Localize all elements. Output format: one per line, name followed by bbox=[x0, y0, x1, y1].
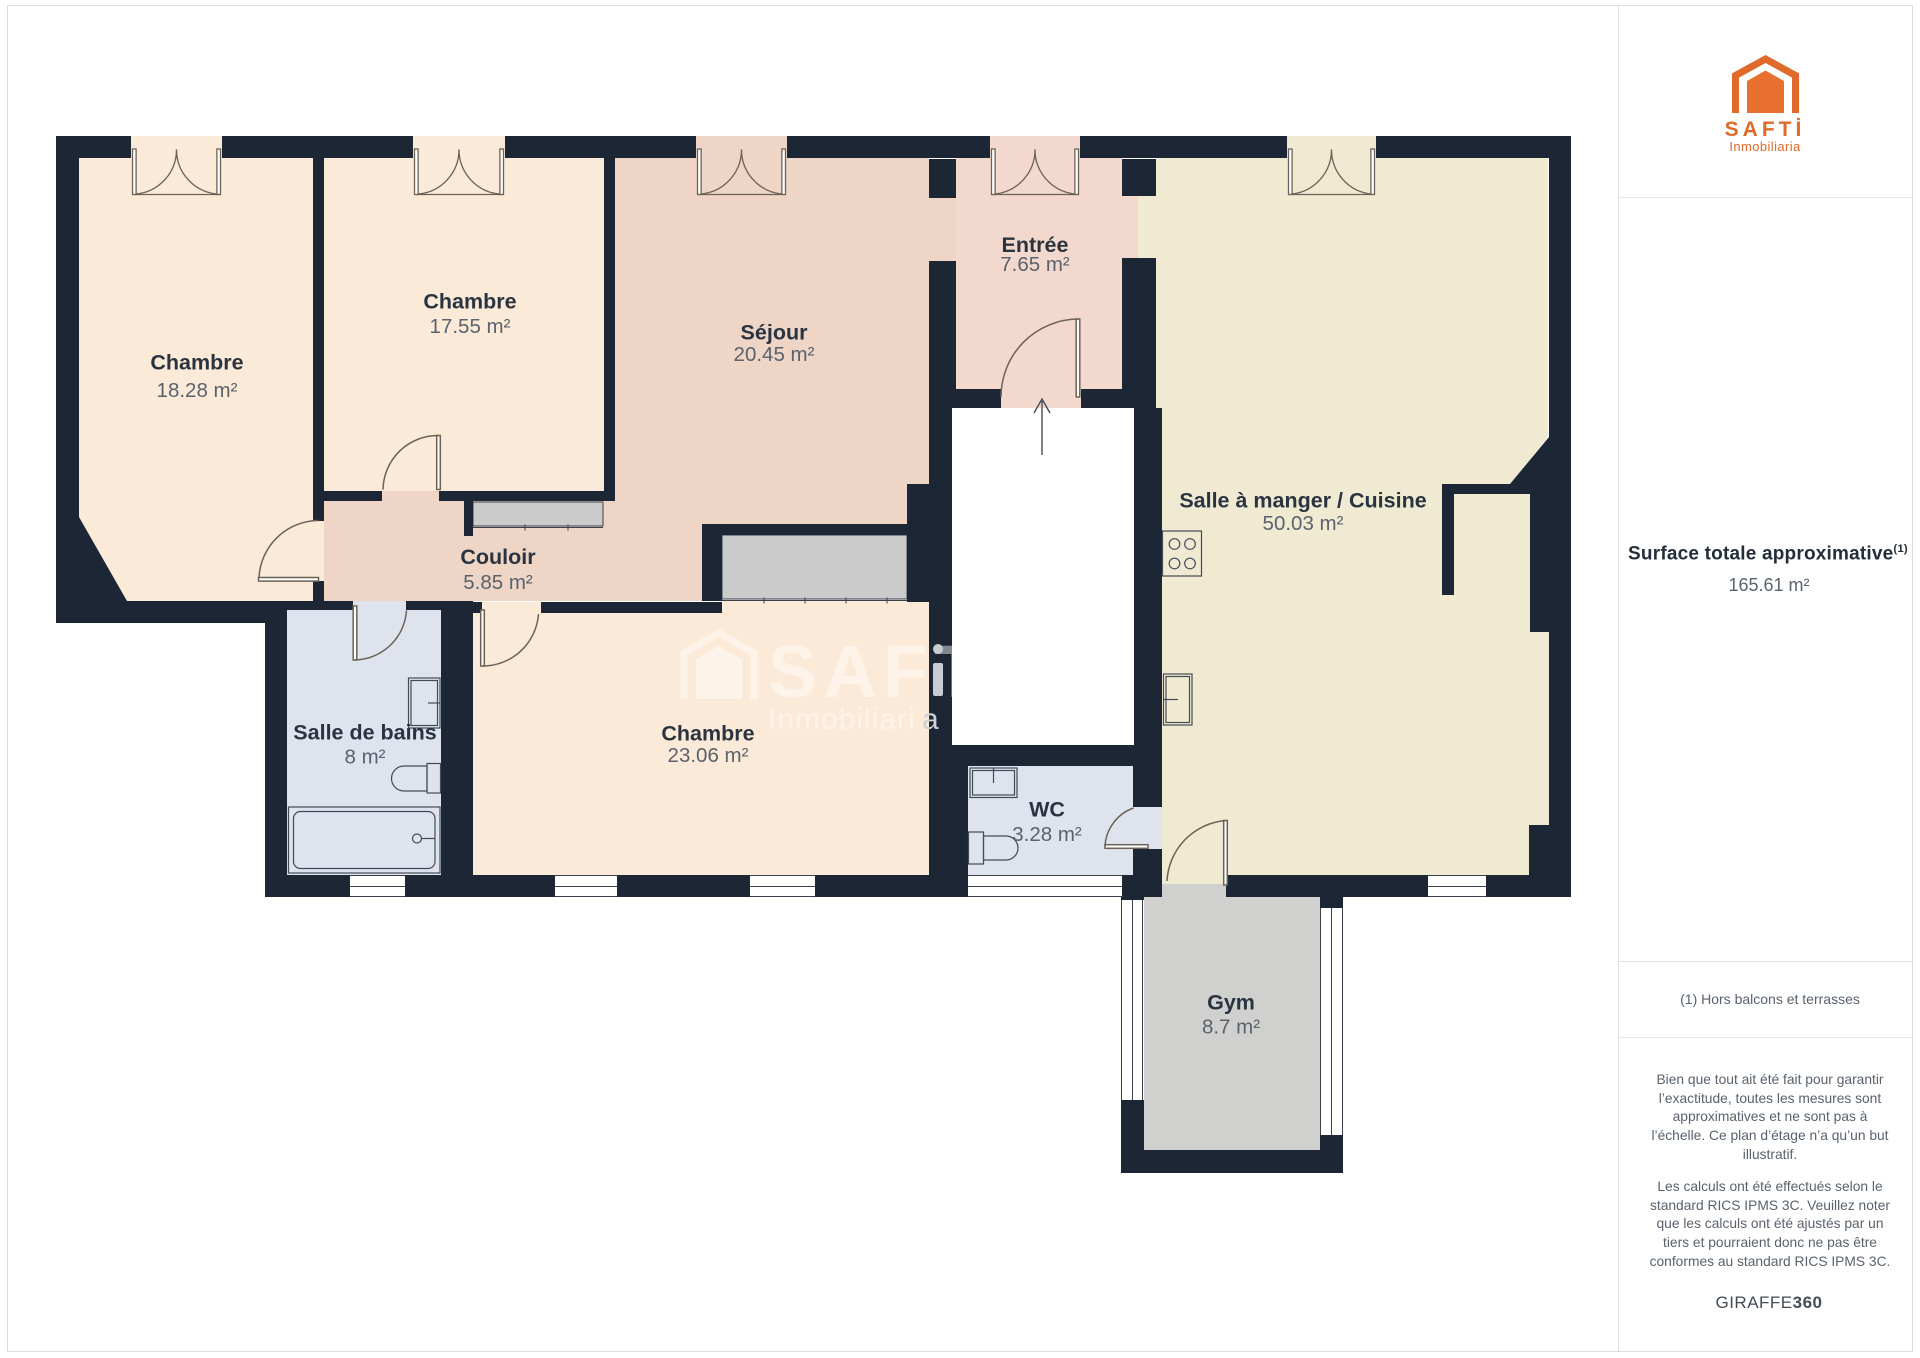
svg-text:50.03 m²: 50.03 m² bbox=[1263, 512, 1344, 535]
svg-text:WC: WC bbox=[1029, 798, 1065, 822]
svg-text:7.65 m²: 7.65 m² bbox=[1000, 253, 1070, 276]
svg-text:a: a bbox=[922, 703, 939, 736]
svg-text:Chambre: Chambre bbox=[661, 722, 754, 746]
svg-text:3.28 m²: 3.28 m² bbox=[1012, 823, 1082, 846]
svg-text:SAFTİ: SAFTİ bbox=[1725, 118, 1806, 141]
svg-text:8 m²: 8 m² bbox=[345, 746, 386, 769]
svg-text:23.06 m²: 23.06 m² bbox=[668, 744, 749, 767]
svg-text:Couloir: Couloir bbox=[460, 545, 536, 569]
svg-text:18.28 m²: 18.28 m² bbox=[157, 379, 238, 402]
svg-text:Chambre: Chambre bbox=[150, 351, 243, 375]
svg-text:20.45 m²: 20.45 m² bbox=[734, 343, 815, 366]
svg-text:17.55 m²: 17.55 m² bbox=[430, 315, 511, 338]
svg-text:Chambre: Chambre bbox=[423, 290, 516, 314]
svg-text:SAFT: SAFT bbox=[768, 630, 985, 713]
svg-text:Salle de bains: Salle de bains bbox=[293, 721, 436, 745]
svg-text:Séjour: Séjour bbox=[741, 321, 809, 345]
svg-text:5.85 m²: 5.85 m² bbox=[463, 571, 533, 594]
svg-text:Inmobiliaria: Inmobiliaria bbox=[1729, 139, 1801, 154]
svg-text:Gym: Gym bbox=[1207, 991, 1255, 1015]
svg-text:8.7 m²: 8.7 m² bbox=[1202, 1016, 1260, 1039]
svg-text:Inmobiliari: Inmobiliari bbox=[768, 703, 916, 736]
svg-text:Salle à manger / Cuisine: Salle à manger / Cuisine bbox=[1179, 489, 1426, 513]
